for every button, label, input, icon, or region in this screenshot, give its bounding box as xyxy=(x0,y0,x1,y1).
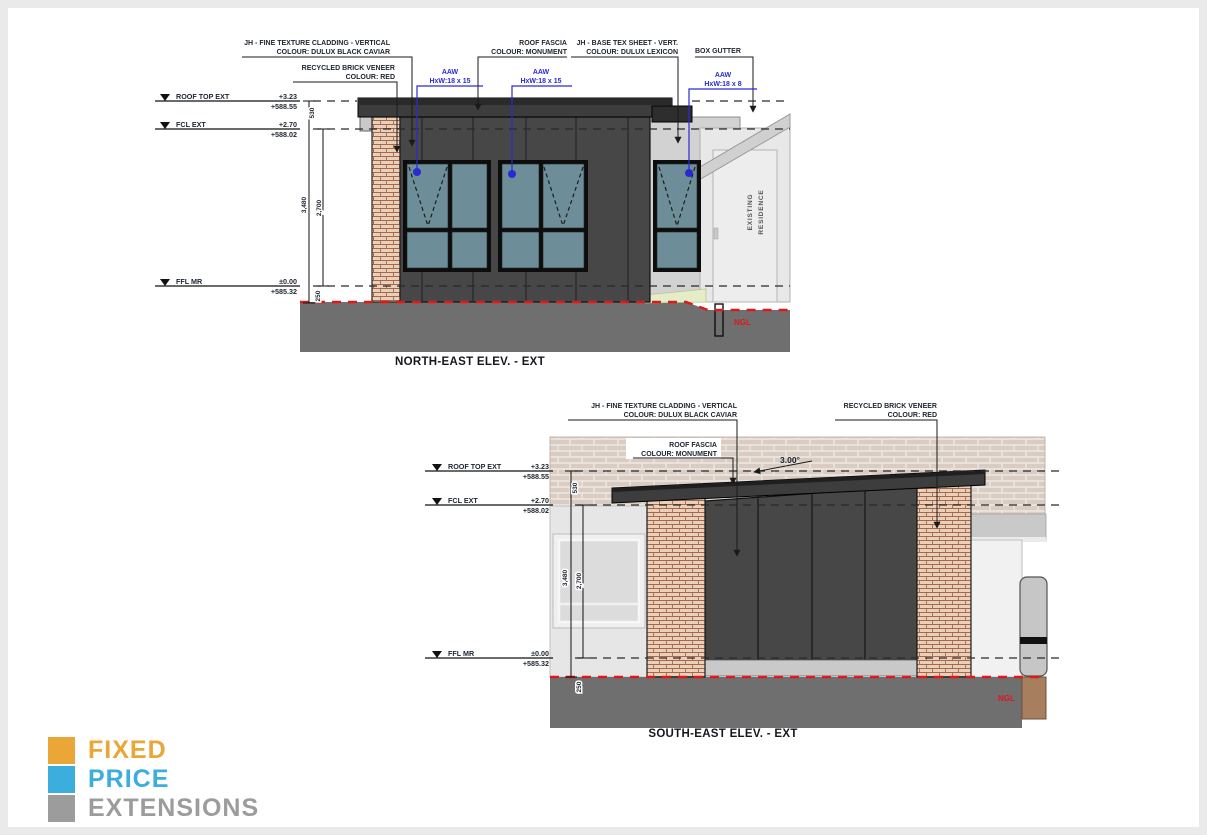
aaw1-dot xyxy=(413,168,421,176)
ne-elevation-title: NORTH-EAST ELEV. - EXT xyxy=(395,356,545,368)
logo-word-price: PRICE xyxy=(88,765,169,793)
box-gutter xyxy=(652,106,692,122)
tank-band xyxy=(1020,637,1047,644)
datum-name: FFL MR xyxy=(448,649,475,658)
datum-triangle xyxy=(432,498,442,505)
logo-square-blue xyxy=(48,766,75,793)
dim-250: 250 xyxy=(315,290,322,301)
datum-level: +3.23 xyxy=(531,462,549,471)
ann-aaw2-line2: HxW:18 x 15 xyxy=(520,78,561,85)
ann-cladding-1: JH - FINE TEXTURE CLADDING - VERTICAL xyxy=(591,403,738,410)
ann-brick-2: COLOUR: RED xyxy=(888,412,937,419)
ann-aaw1-line1: AAW xyxy=(442,69,459,76)
logo-word-fixed: FIXED xyxy=(88,736,167,764)
datum-roof-top-ext: ROOF TOP EXT +3.23 +588.55 xyxy=(155,92,300,111)
brick-pier xyxy=(372,117,400,302)
datum-level: ±0.00 xyxy=(531,649,549,658)
logo-row-price: PRICE xyxy=(48,765,259,793)
ann-basetex-2: COLOUR: DULUX LEXICON xyxy=(586,49,678,56)
south-east-elevation: NGL ROOF TOP EXT +3.23 +588.55 FCL EXT +… xyxy=(425,403,1060,740)
datum-fcl-ext: FCL EXT +2.70 +588.02 xyxy=(425,496,553,515)
aaw3-dot xyxy=(685,169,693,177)
roof-fascia-top xyxy=(358,98,672,105)
datum-ahd: +585.32 xyxy=(271,287,297,296)
elevations-drawing: NGL EXISTING RESIDENCE ROOF TOP EXT +3.2… xyxy=(0,0,1207,835)
datum-level: +2.70 xyxy=(279,120,297,129)
datum-ahd: +588.02 xyxy=(523,506,549,515)
ngl-label: NGL xyxy=(734,318,751,327)
datum-triangle xyxy=(160,279,170,286)
dim-2700: 2,700 xyxy=(576,572,583,589)
ann-brick-1: RECYCLED BRICK VENEER xyxy=(302,65,395,72)
ann-cladding-1: JH - FINE TEXTURE CLADDING - VERTICAL xyxy=(244,40,391,47)
se-elevation-title: SOUTH-EAST ELEV. - EXT xyxy=(648,728,797,740)
datum-name: FFL MR xyxy=(176,277,203,286)
base-band xyxy=(705,660,917,676)
ngl-label: NGL xyxy=(998,694,1015,703)
dim-3480: 3,480 xyxy=(562,569,569,586)
datum-ffl-mr: FFL MR ±0.00 +585.32 xyxy=(155,277,300,296)
datum-name: FCL EXT xyxy=(176,120,206,129)
logo-row-extensions: EXTENSIONS xyxy=(48,794,259,822)
soil-strip xyxy=(1022,677,1046,719)
dim-250: 250 xyxy=(576,681,583,692)
existing-door xyxy=(713,150,777,302)
datum-triangle xyxy=(160,94,170,101)
dim-2700: 2,700 xyxy=(316,199,323,216)
aaw2-dot xyxy=(508,170,516,178)
ann-brick-1: RECYCLED BRICK VENEER xyxy=(844,403,937,410)
window-1 xyxy=(403,160,491,272)
datum-ahd: +588.55 xyxy=(271,102,297,111)
window-3 xyxy=(653,160,701,272)
datum-level: +2.70 xyxy=(531,496,549,505)
tank xyxy=(1020,577,1047,676)
logo-square-orange xyxy=(48,737,75,764)
ann-aaw3-line2: HxW:18 x 8 xyxy=(704,81,741,88)
ann-aaw3-line1: AAW xyxy=(715,72,732,79)
ann-aaw2-line1: AAW xyxy=(533,69,550,76)
dim-530: 530 xyxy=(572,482,579,493)
datum-ahd: +585.32 xyxy=(523,659,549,668)
datum-ffl-mr: FFL MR ±0.00 +585.32 xyxy=(425,649,553,668)
right-existing-wall xyxy=(971,540,1022,677)
ann-cladding-2: COLOUR: DULUX BLACK CAVIAR xyxy=(624,412,737,419)
datum-ahd: +588.55 xyxy=(523,472,549,481)
ann-fascia-2: COLOUR: MONUMENT xyxy=(641,451,718,458)
datum-level: +3.23 xyxy=(279,92,297,101)
logo-row-fixed: FIXED xyxy=(48,736,259,764)
datum-triangle xyxy=(432,651,442,658)
dim-530: 530 xyxy=(309,107,316,118)
ann-fascia-1: ROOF FASCIA xyxy=(669,442,717,449)
existing-residence-label-1: EXISTING xyxy=(747,194,754,231)
ann-basetex-1: JH - BASE TEX SHEET - VERT. xyxy=(576,40,678,47)
left-brick-pier xyxy=(647,498,705,677)
dim-3480: 3,480 xyxy=(301,196,308,213)
right-brick-pier xyxy=(917,485,971,677)
company-logo: FIXED PRICE EXTENSIONS xyxy=(48,736,259,822)
ann-aaw1-line2: HxW:18 x 15 xyxy=(429,78,470,85)
north-east-elevation: NGL EXISTING RESIDENCE ROOF TOP EXT +3.2… xyxy=(155,40,790,368)
datum-triangle xyxy=(160,122,170,129)
datum-ahd: +588.02 xyxy=(271,130,297,139)
ann-cladding-2: COLOUR: DULUX BLACK CAVIAR xyxy=(277,49,390,56)
ground-mass xyxy=(550,677,1022,728)
ann-roof-pitch: 3.00° xyxy=(780,455,801,465)
datum-level: ±0.00 xyxy=(279,277,297,286)
existing-residence-label-2: RESIDENCE xyxy=(758,189,765,234)
datum-roof-top-ext: ROOF TOP EXT +3.23 +588.55 xyxy=(425,462,553,481)
datum-triangle xyxy=(432,464,442,471)
door-handle xyxy=(714,228,718,239)
ann-brick-2: COLOUR: RED xyxy=(346,74,395,81)
datum-fcl-ext: FCL EXT +2.70 +588.02 xyxy=(155,120,300,139)
datum-name: FCL EXT xyxy=(448,496,478,505)
logo-square-gray xyxy=(48,795,75,822)
datum-name: ROOF TOP EXT xyxy=(176,92,230,101)
ann-fascia-2: COLOUR: MONUMENT xyxy=(491,49,568,56)
logo-word-extensions: EXTENSIONS xyxy=(88,794,259,822)
datum-name: ROOF TOP EXT xyxy=(448,462,502,471)
ann-fascia-1: ROOF FASCIA xyxy=(519,40,567,47)
ann-box-gutter: BOX GUTTER xyxy=(695,48,741,55)
